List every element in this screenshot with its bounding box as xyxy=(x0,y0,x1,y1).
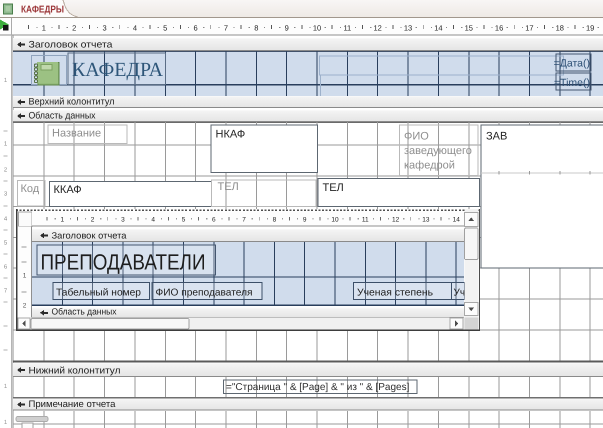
svg-text:4: 4 xyxy=(133,24,137,33)
svg-text:Табельный номер: Табельный номер xyxy=(56,288,141,299)
svg-text:2: 2 xyxy=(72,24,76,33)
svg-text:Заголовок отчета: Заголовок отчета xyxy=(29,40,114,51)
svg-text:10: 10 xyxy=(331,217,339,224)
svg-text:12: 12 xyxy=(392,217,400,224)
svg-text:НКАФ: НКАФ xyxy=(216,129,246,141)
svg-text:ТЕЛ: ТЕЛ xyxy=(218,181,239,193)
svg-text:Область данных: Область данных xyxy=(52,307,117,317)
svg-text:ФИО: ФИО xyxy=(404,131,429,143)
svg-text:ККАФ: ККАФ xyxy=(54,184,82,196)
svg-text:8: 8 xyxy=(273,217,277,224)
svg-text:1: 1 xyxy=(60,217,64,224)
svg-text:=Time(): =Time() xyxy=(554,77,590,89)
svg-text:11: 11 xyxy=(343,24,351,33)
svg-text:Примечание отчета: Примечание отчета xyxy=(29,399,117,410)
svg-text:1: 1 xyxy=(42,24,46,33)
svg-text:6: 6 xyxy=(212,217,216,224)
svg-text:ФИО преподавателя: ФИО преподавателя xyxy=(156,288,253,299)
svg-text:18: 18 xyxy=(556,24,564,33)
svg-text:12: 12 xyxy=(374,24,382,33)
svg-text:2: 2 xyxy=(23,303,27,310)
svg-text:13: 13 xyxy=(422,217,430,224)
svg-text:ЗАВ: ЗАВ xyxy=(486,131,507,143)
svg-text:КАФЕДРА: КАФЕДРА xyxy=(72,59,164,81)
svg-text:7: 7 xyxy=(242,217,246,224)
svg-text:ТЕЛ: ТЕЛ xyxy=(323,182,344,194)
svg-text:19: 19 xyxy=(586,24,594,33)
svg-text:8: 8 xyxy=(254,24,258,33)
svg-text:17: 17 xyxy=(525,24,533,33)
svg-text:9: 9 xyxy=(285,24,289,33)
svg-text:15: 15 xyxy=(465,24,473,33)
svg-text:Ученая степень: Ученая степень xyxy=(357,288,433,299)
svg-text:5: 5 xyxy=(163,24,167,33)
svg-text:11: 11 xyxy=(362,217,369,224)
svg-text:10: 10 xyxy=(313,24,321,33)
svg-text:ПРЕПОДАВАТЕЛИ: ПРЕПОДАВАТЕЛИ xyxy=(41,250,206,275)
svg-text:Код: Код xyxy=(21,183,40,195)
svg-text:Нижний колонтитул: Нижний колонтитул xyxy=(29,366,121,377)
svg-text:Область данных: Область данных xyxy=(29,111,96,122)
svg-text:Название: Название xyxy=(52,128,101,140)
svg-text:1: 1 xyxy=(23,273,27,280)
svg-text:Верхний колонтитул: Верхний колонтитул xyxy=(29,97,115,108)
svg-text:кафедрой: кафедрой xyxy=(404,160,455,172)
svg-text:7: 7 xyxy=(224,24,228,33)
svg-text:6: 6 xyxy=(194,24,198,33)
svg-text:3: 3 xyxy=(102,24,106,33)
svg-text:2: 2 xyxy=(91,217,95,224)
svg-text:заведующего: заведующего xyxy=(404,145,472,157)
svg-text:3: 3 xyxy=(121,217,125,224)
svg-text:4: 4 xyxy=(151,217,155,224)
svg-text:16: 16 xyxy=(495,24,503,33)
svg-text:9: 9 xyxy=(303,217,307,224)
svg-text:14: 14 xyxy=(434,24,442,33)
svg-text:=Дата(): =Дата() xyxy=(554,58,590,70)
svg-text:КАФЕДРЫ: КАФЕДРЫ xyxy=(21,5,64,16)
svg-text:Заголовок отчета: Заголовок отчета xyxy=(52,231,127,241)
svg-text:Уч: Уч xyxy=(454,288,466,299)
svg-text:5: 5 xyxy=(182,217,186,224)
svg-text:14: 14 xyxy=(453,217,461,224)
svg-text:13: 13 xyxy=(404,24,412,33)
svg-text:="Страница " & [Page] & " из ": ="Страница " & [Page] & " из " & [Pages] xyxy=(226,382,410,393)
